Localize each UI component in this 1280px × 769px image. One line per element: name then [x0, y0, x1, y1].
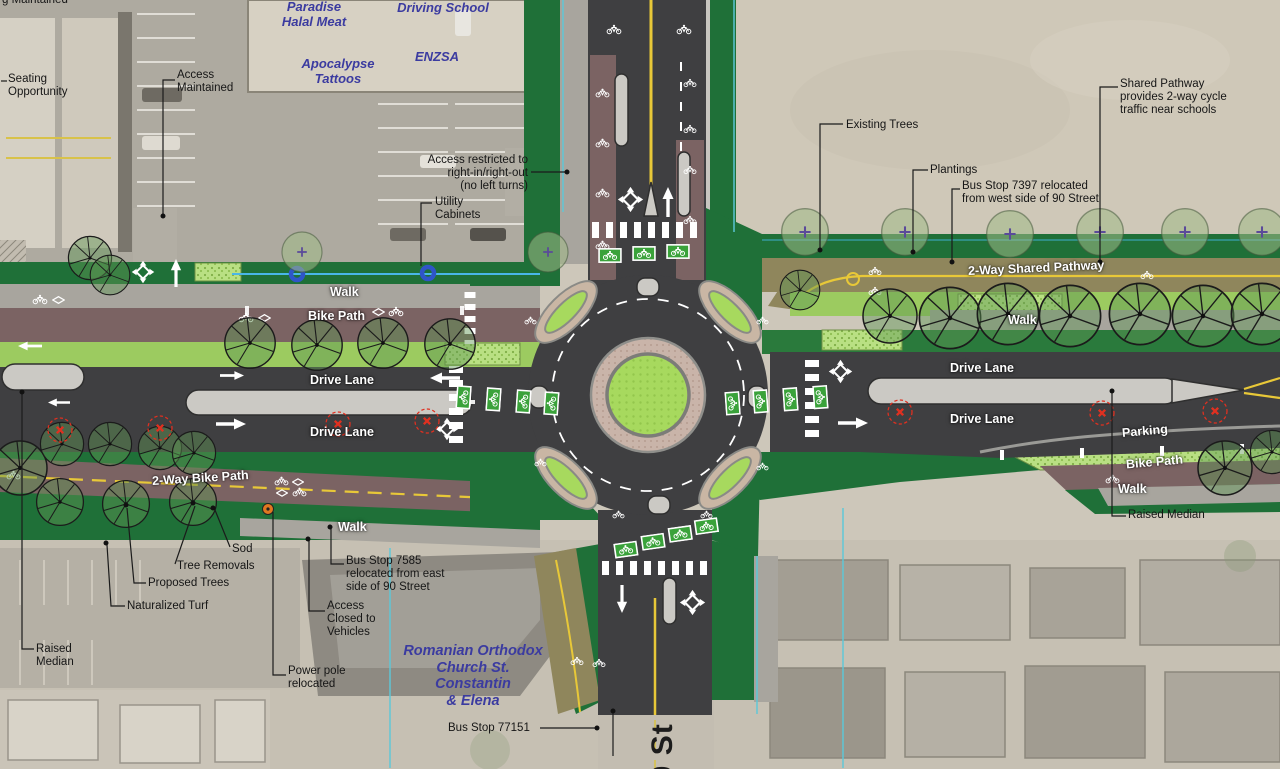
- central-island: [607, 354, 689, 436]
- roundabout-plan-map: g Maintained Seating Opportunity Access …: [0, 0, 1280, 769]
- point-markers: [263, 504, 274, 515]
- plan-graphics: [0, 0, 1280, 769]
